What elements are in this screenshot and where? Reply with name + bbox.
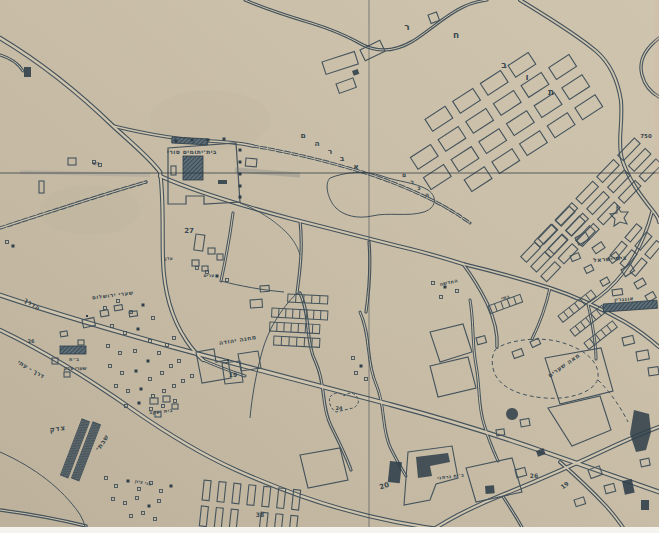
building: [485, 485, 495, 494]
building: [218, 180, 227, 184]
scatter-mark: [223, 138, 226, 141]
scatter-mark: [239, 196, 242, 199]
spread-letter: ה: [314, 139, 319, 148]
spread-letter: ר: [410, 178, 414, 185]
building: [24, 67, 31, 77]
map-label: 27: [184, 227, 194, 235]
scan-edge-tint: [655, 0, 659, 180]
scatter-mark: [137, 328, 140, 331]
scatter-mark: [207, 139, 210, 142]
scatter-mark: [239, 161, 242, 164]
scatter-mark: [239, 149, 242, 152]
map-canvas: בית־יתומים סוריב״חשערי צדקשערי ירושלוםהד…: [0, 0, 659, 533]
scatter-mark: [140, 388, 143, 391]
spread-letter: ח: [453, 30, 459, 40]
spread-letter: ם: [300, 131, 305, 140]
spread-letter: ה: [425, 191, 429, 198]
spread-letter: ב: [501, 60, 507, 70]
map-label: 1/1: [92, 161, 99, 166]
scatter-mark: [360, 365, 363, 368]
map-label: ב״ח: [69, 356, 79, 362]
building: [641, 500, 649, 510]
building-dark: [641, 500, 649, 510]
map-label: 26: [530, 472, 538, 479]
building: [388, 461, 402, 483]
spread-letter: א: [353, 162, 358, 171]
spread-letter: ר: [404, 22, 409, 32]
building-dark-shape: [506, 408, 518, 420]
map-figure: בית־יתומים סוריב״חשערי צדקשערי ירושלוםהד…: [0, 0, 659, 533]
building-dark: [218, 180, 227, 184]
scan-edge-white: [0, 527, 659, 533]
scatter-mark: [239, 185, 242, 188]
map-label: 24: [336, 405, 343, 411]
scatter-mark: [170, 485, 173, 488]
spread-letter: ו: [525, 72, 528, 82]
map-label: 38: [256, 511, 264, 518]
scatter-mark: [12, 245, 15, 248]
building-dark: [485, 485, 495, 494]
building-dark: [183, 156, 203, 180]
scatter-mark: [135, 370, 138, 373]
building: [183, 156, 203, 180]
spread-letter: ב: [340, 154, 345, 163]
map-label: שערי צדק: [63, 365, 86, 372]
map-label: בית־יתומים סורי: [167, 148, 217, 155]
map-label: ערים: [204, 273, 215, 278]
spread-letter: ם: [402, 171, 406, 178]
scatter-mark: [191, 139, 194, 142]
building-dark: [24, 67, 31, 77]
map-label: 26: [28, 338, 35, 344]
scatter-mark: [147, 360, 150, 363]
scatter-mark: [216, 275, 219, 278]
scatter-mark: [127, 480, 130, 483]
scatter-mark: [148, 505, 151, 508]
map-label: 750: [640, 133, 652, 139]
scatter-mark: [86, 315, 88, 317]
building-dark: [60, 346, 86, 354]
scatter-mark: [138, 402, 141, 405]
scatter-mark: [227, 359, 229, 361]
scatter-mark: [142, 304, 145, 307]
spread-letter: כ: [417, 184, 421, 191]
building-dark: [388, 461, 402, 483]
spread-letter: ת: [548, 87, 554, 97]
scatter-mark: [175, 140, 178, 143]
map-label: 19: [229, 371, 237, 378]
spread-letter: ר: [328, 147, 333, 156]
building: [60, 346, 86, 354]
